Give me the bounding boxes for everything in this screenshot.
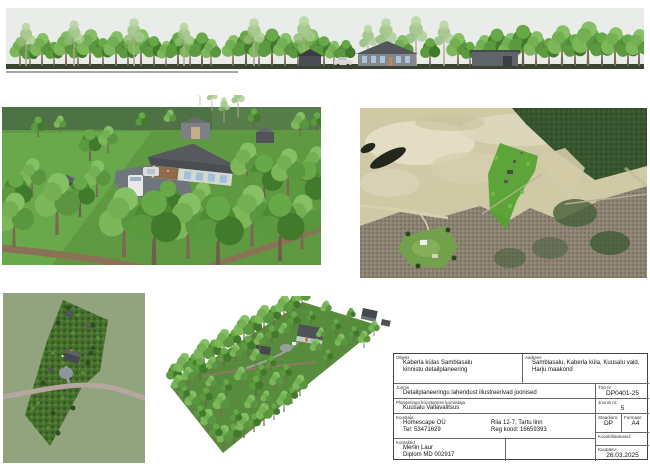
titleblock-cell-joonis: Joonis Detailplaneeringu lahendust illus… [394, 384, 596, 399]
render-person [167, 170, 169, 177]
staadium-value: DP [596, 420, 621, 427]
formaat-value: A4 [622, 420, 649, 427]
titleblock-cell-staadium: Staadium: DP [596, 414, 622, 433]
titleblock-cell-objekt: Objekt Kaberla külas Samblasalu kinnistu… [394, 354, 523, 384]
render-car [143, 167, 159, 176]
joonis-value: Detailplaneeringu lahendust illustreeriv… [394, 390, 595, 397]
titleblock-cell-joonis-nr: Joonis nr: 5 [596, 399, 649, 414]
isometric-view [166, 296, 396, 466]
iso-car [292, 342, 296, 345]
titleblock-cell-empty [506, 439, 596, 461]
titleblock-cell-kuupaev: Kuupäev: 26.03.2025 [596, 446, 649, 461]
title-block: Objekt Kaberla külas Samblasalu kinnistu… [393, 353, 648, 460]
titleblock-cell-too-nr: Töö nr: DP0401-25 [596, 384, 649, 399]
koostaja-phone: Tel: 53471629 [403, 427, 491, 434]
iso-parking [280, 344, 292, 352]
aadress-value-line1: Samblasalu, Kaberla küla, Kuusalu vald, [523, 360, 649, 367]
too-nr-value: DP0401-25 [596, 390, 649, 397]
titleblock-cell-korraldaja: Planeeringu koostamise korraldaja Kuusal… [394, 399, 596, 414]
aadress-value-line2: Harju maakond [523, 367, 649, 374]
kontaktid-name: Merlin Laur [394, 445, 505, 452]
site-plan-view [3, 293, 145, 463]
aerial-field-texture [415, 115, 485, 131]
drawing-sheet: Objekt Kaberla külas Samblasalu kinnistu… [0, 0, 650, 474]
kuupaev-value: 26.03.2025 [596, 452, 649, 459]
titleblock-cell-formaat: Formaat: A4 [622, 414, 649, 433]
koostaja-company: Homescape OÜ [403, 420, 491, 427]
panorama-road-line [6, 71, 238, 73]
titleblock-cell-kooskolastused: Kooskõlastused: [596, 433, 649, 446]
titleblock-cell-aadress: Aadress Samblasalu, Kaberla küla, Kuusal… [523, 354, 649, 384]
iso-shed-small [381, 319, 391, 327]
titleblock-cell-kontaktid: Kontaktid Merlin Laur Diplom MD 002917 [394, 439, 506, 461]
kontaktid-credential: Diplom MD 002917 [394, 452, 505, 459]
titleblock-cell-koostaja: Koostaja Homescape OÜ Riia 12-7, Tartu l… [394, 414, 596, 439]
kooskolastused-label: Kooskõlastused: [596, 433, 649, 439]
korraldaja-value: Kuusalu Vallavalitsus [394, 405, 595, 412]
plan-roof4 [48, 367, 54, 372]
aerial-photo-view [360, 108, 647, 278]
iso-shed [361, 308, 378, 322]
koostaja-address: Riia 12-7, Tartu linn [491, 420, 595, 427]
koostaja-line2: Tel: 53471629 Reg kood: 16659393 [394, 427, 595, 434]
aerial-pale-field3 [360, 169, 420, 197]
perspective-render-view [2, 95, 321, 265]
koostaja-line1: Homescape OÜ Riia 12-7, Tartu linn [394, 420, 595, 427]
plan-driveway [59, 367, 73, 379]
objekt-value-line1: Kaberla külas Samblasalu [394, 360, 522, 367]
objekt-value-line2: kinnistu detailplaneering [394, 367, 522, 374]
elevation-panorama-view [6, 8, 644, 76]
joonis-nr-value: 5 [596, 405, 649, 412]
koostaja-reg-code: Reg kood: 16659393 [491, 427, 595, 434]
panorama-outbuilding [470, 50, 520, 66]
